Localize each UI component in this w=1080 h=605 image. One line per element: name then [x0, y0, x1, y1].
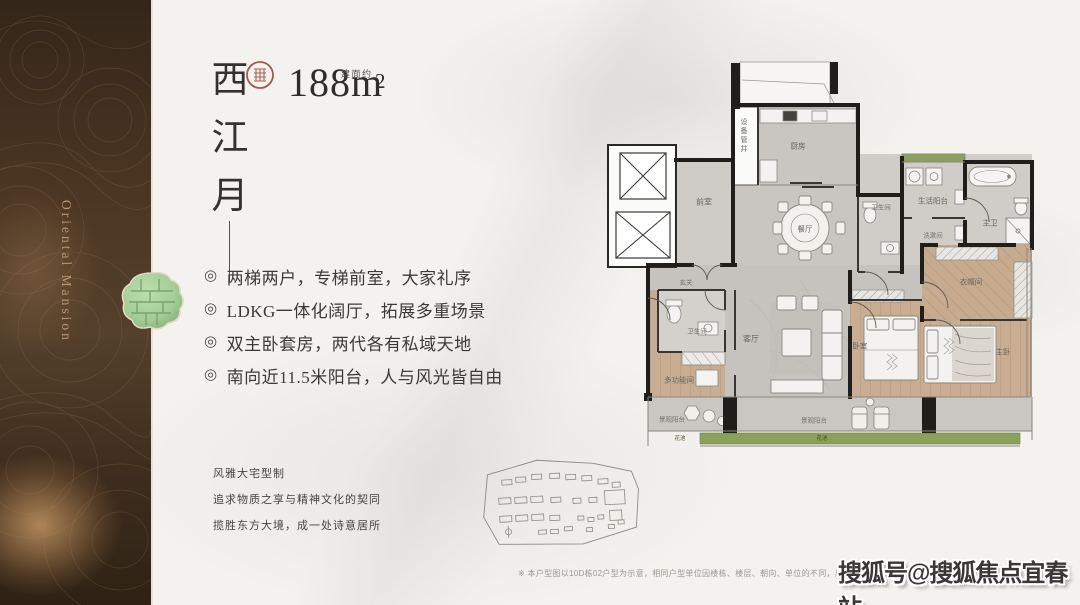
title-char: 江 [209, 110, 251, 168]
room-label-lift-lobby: 前室 [696, 197, 712, 207]
planter-label: 花池 [816, 434, 828, 442]
title-char: 西 [209, 52, 251, 110]
room-label-view-balcony-left: 景观阳台 [659, 415, 685, 424]
tagline-line: 揽胜东方大境，成一处诗意居所 [213, 513, 381, 539]
bullet-icon: ◎ [204, 298, 218, 320]
selling-points-list: ◎两梯两户，专梯前室，大家礼序 ◎LDKG一体化阔厅，拓展多重场景 ◎双主卧套房… [204, 265, 503, 397]
bedroom-bed [864, 316, 918, 380]
room-label-guest-bath: 卫生间 [687, 327, 707, 336]
tagline-line: 风雅大宅型制 [213, 461, 381, 487]
bullet-icon: ◎ [204, 265, 218, 287]
room-label-laundry: 洗漱间 [923, 231, 943, 240]
room-label-living: 客厅 [743, 334, 759, 344]
title-char: 月 [209, 168, 251, 226]
page-title-vertical: 西 江 月 [209, 52, 251, 226]
room-label-cloak-room: 衣帽间 [960, 277, 983, 287]
master-bed [924, 326, 996, 383]
selling-point-text: 双主卧套房，两代各有私域天地 [227, 330, 472, 355]
page: Oriental Mansion 西 江 月 188m 建面约 2 [0, 0, 1080, 605]
selling-point-text: 南向近11.5米阳台，人与风光皆自由 [227, 363, 503, 388]
floor-area: 188m 建面约 2 [288, 60, 428, 114]
room-label-bedroom: 卧室 [853, 341, 868, 351]
bullet-icon: ◎ [204, 364, 218, 386]
tagline-line: 追求物质之享与精神文化的契同 [213, 487, 381, 513]
room-label-equipment-shaft: 设备管井 [739, 118, 749, 178]
list-item: ◎南向近11.5米阳台，人与风光皆自由 [204, 364, 503, 386]
floor-plan: 前室 厨房 餐厅 卫生间 生活阳台 洗漱间 主卫 玄关 卫生间 多功能间 客厅 … [600, 50, 1050, 460]
room-label-service-balcony: 生活阳台 [918, 196, 948, 206]
selling-point-text: 两梯两户，专梯前室，大家礼序 [227, 264, 472, 289]
room-label-view-balcony-right: 景观阳台 [801, 416, 827, 425]
room-label-master-bedroom: 主卧 [996, 347, 1011, 357]
watermark-text: 搜狐号@搜狐焦点宜春站 [838, 553, 1080, 605]
site-plan-sketch [477, 451, 647, 553]
list-item: ◎两梯两户，专梯前室，大家礼序 [204, 265, 503, 287]
jade-ornament-icon [119, 271, 185, 335]
elevator-shafts [608, 145, 676, 267]
room-label-foyer: 玄关 [680, 278, 694, 287]
list-item: ◎LDKG一体化阔厅，拓展多重场景 [204, 298, 503, 320]
room-label-bath-small: 卫生间 [871, 203, 891, 212]
room-label-dining: 餐厅 [798, 225, 813, 234]
bullet-icon: ◎ [204, 331, 218, 353]
area-prefix-label: 建面约 [341, 67, 373, 80]
list-item: ◎双主卧套房，两代各有私域天地 [204, 331, 503, 353]
selling-point-text: LDKG一体化阔厅，拓展多重场景 [227, 297, 486, 322]
open-well-outline [740, 62, 836, 107]
area-superscript: 2 [375, 69, 386, 94]
room-label-master-bath: 主卫 [983, 218, 998, 228]
room-label-kitchen: 厨房 [791, 141, 806, 151]
tagline-block: 风雅大宅型制 追求物质之享与精神文化的契同 揽胜东方大境，成一处诗意居所 [213, 461, 381, 539]
room-label-multi-room: 多功能间 [664, 375, 694, 385]
brand-vertical-text: Oriental Mansion [58, 200, 74, 350]
planter-label: 花池 [674, 434, 686, 442]
